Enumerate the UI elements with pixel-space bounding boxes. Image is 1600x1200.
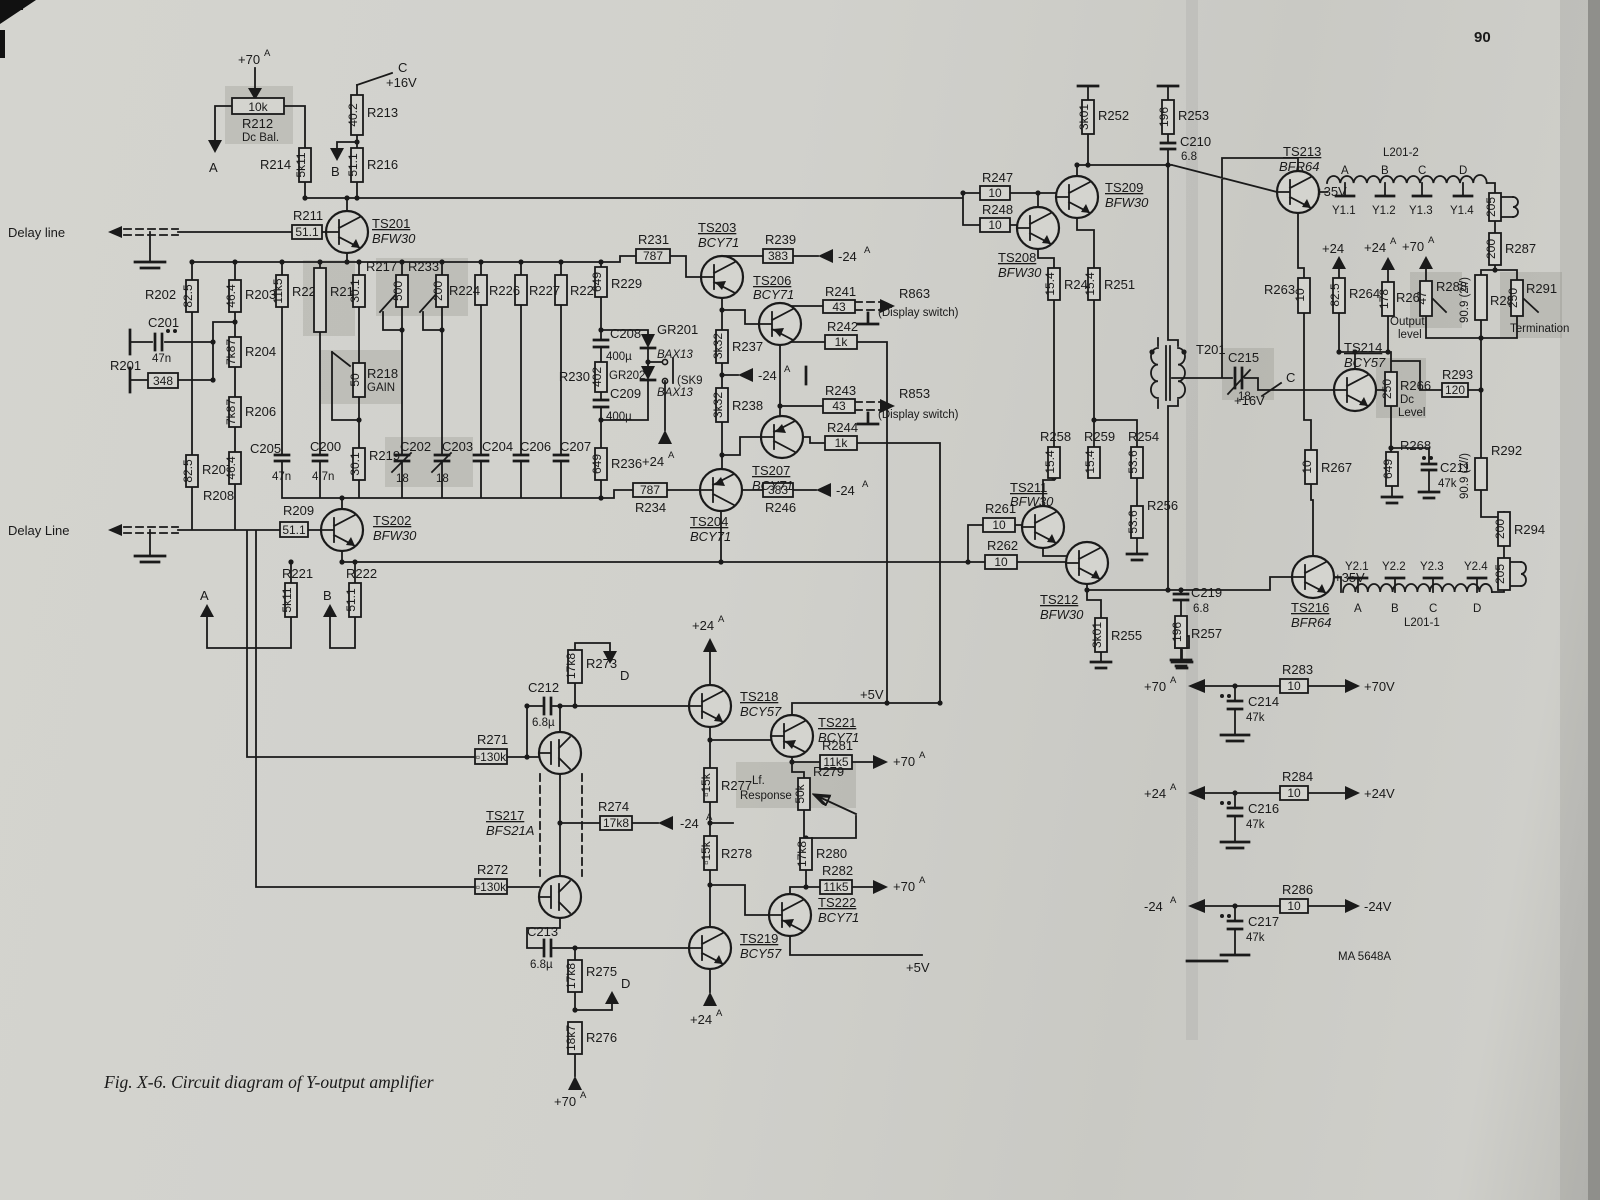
c208-value: 400µ: [606, 351, 632, 363]
ts214-ref: TS214: [1344, 340, 1382, 355]
r287-ref: R287: [1505, 241, 1536, 256]
c200-value: 4.7n: [312, 471, 334, 483]
r243-ref: R243: [825, 383, 856, 398]
l201-1-label: L201-1: [1404, 617, 1440, 629]
supply-p24v: +24V: [1364, 786, 1395, 801]
r288-function2: level: [1398, 329, 1422, 341]
c209-value: 400µ: [606, 411, 632, 423]
gr202-type: BAX13: [657, 387, 693, 399]
y14-label: Y1.4: [1450, 205, 1474, 217]
supply-p24a-row: +24: [1144, 786, 1166, 801]
r249-value: 15.4: [1043, 272, 1057, 296]
point-c-label: C: [398, 60, 407, 75]
r275-ref: R275: [586, 964, 617, 979]
r242-value: 1k: [835, 335, 849, 349]
c200-ref: C200: [310, 439, 341, 454]
r204-ref: R204: [245, 344, 276, 359]
doc-code: MA 5648A: [1338, 951, 1391, 963]
r273-ref: R273: [586, 656, 617, 671]
sup-a: A: [862, 479, 869, 490]
ts207-ref: TS207: [752, 463, 790, 478]
resistor-r242: 1kR242: [825, 319, 858, 349]
r258-value: 15.4: [1043, 450, 1057, 474]
page-number: 90: [1474, 29, 1491, 46]
resistor-r229: 649R229: [590, 267, 642, 297]
point-a-label: A: [209, 160, 218, 175]
r259-value: 15.4: [1083, 450, 1097, 474]
r244-value: 1k: [835, 436, 849, 450]
r264-ref: R264: [1349, 286, 1380, 301]
c206-ref: C206: [520, 439, 551, 454]
t201-label: T201: [1196, 342, 1226, 357]
r268-value: 649: [1381, 459, 1395, 479]
ts204-ref: TS204: [690, 514, 728, 529]
sup-a: A: [1428, 235, 1435, 246]
ts209-type: BFW30: [1105, 195, 1149, 210]
resistor-r262: 10R262: [985, 538, 1018, 569]
ts221-ref: TS221: [818, 715, 856, 730]
r204-value: 7k87: [224, 339, 238, 365]
resistor-r282: 11k5R282: [820, 863, 853, 894]
r269-value: 178: [1377, 289, 1391, 309]
r273-value: 17k8: [564, 653, 578, 679]
resistor-r263: 10R263: [1264, 278, 1310, 313]
tap-c2: C: [1429, 603, 1437, 615]
r252-ref: R252: [1098, 108, 1129, 123]
supply-p70v: +70V: [1364, 679, 1395, 694]
resistor-r254: 53.6R254: [1126, 429, 1159, 478]
r234-value: 787: [640, 483, 660, 497]
r288-function1: Output: [1390, 316, 1425, 328]
resistor-r252: 3k01R252: [1077, 100, 1129, 134]
r230-value: 402: [590, 367, 604, 387]
r234-ref: R234: [635, 500, 666, 515]
r853-ref: R853: [899, 386, 930, 401]
gr201-type: BAX13: [657, 349, 693, 361]
r222-ref: R222: [346, 566, 377, 581]
resistor-30r1: 30.1: [348, 275, 365, 307]
r261-value: 10: [992, 518, 1006, 532]
r288-value: 47: [1415, 291, 1429, 305]
resistor-r283: 10R283: [1280, 662, 1313, 693]
r216-ref: R216: [367, 157, 398, 172]
supply-p5v-top: +5V: [860, 687, 884, 702]
resistor-r214: 5k11R214: [260, 148, 311, 182]
r229-value: 649: [590, 272, 604, 292]
ts216-type: BFR64: [1291, 615, 1331, 630]
r203-value: 46.4: [224, 284, 238, 308]
r212-function: Dc Bal.: [242, 132, 279, 144]
capacitor-c207: C207: [560, 439, 591, 454]
resistor-r278: ▫15kR278: [699, 836, 752, 870]
r266-function1: Dc: [1400, 394, 1414, 406]
r291-ref: R291: [1526, 281, 1557, 296]
scanned-schematic-page: (SK9 10kR212Dc Bal. +70A A 40.2R213 C+16…: [0, 0, 1600, 1200]
r214-ref: R214: [260, 157, 291, 172]
r233-value: 200: [431, 281, 445, 301]
r253-ref: R253: [1178, 108, 1209, 123]
r218-value: 50: [348, 373, 362, 387]
sup-a: A: [706, 812, 713, 823]
r231-ref: R231: [638, 232, 669, 247]
r277-value: ▫15k: [699, 772, 713, 797]
r279-function2: Response: [740, 790, 792, 802]
ts212-ref: TS212: [1040, 592, 1078, 607]
resistor-r292: R29290.9 (2//): [1459, 443, 1522, 499]
r267-ref: R267: [1321, 460, 1352, 475]
r863-note: (Display switch): [878, 307, 959, 319]
c213-ref: C213: [527, 924, 558, 939]
figure-caption: Fig. X-6. Circuit diagram of Y-output am…: [103, 1072, 434, 1092]
r272-value: ▫130k: [476, 880, 507, 894]
r266-value: 250: [1380, 379, 1394, 399]
c213-value: 6.8µ: [530, 959, 553, 971]
r278-ref: R278: [721, 846, 752, 861]
ts221-type: BCY71: [818, 730, 859, 745]
r259-ref: R259: [1084, 429, 1115, 444]
c219-ref: C219: [1191, 585, 1222, 600]
supply-m24-r239: -24: [838, 249, 857, 264]
supply-p24-r264: +24: [1322, 241, 1344, 256]
ts216-ref: TS216: [1291, 600, 1329, 615]
c201-value: 47n: [152, 353, 171, 365]
ts202-type: BFW30: [373, 528, 417, 543]
c216-ref: C216: [1248, 801, 1279, 816]
ts212-type: BFW30: [1040, 607, 1084, 622]
diode-gr201: GR201BAX13: [657, 322, 698, 361]
resistor-r274: 17k8R274: [598, 799, 632, 830]
resistor-r221: 5k11R221: [280, 566, 313, 617]
resistor-r286: 10R286: [1280, 882, 1313, 913]
resistor-r226: R226: [489, 275, 527, 305]
ts218-type: BCY57: [740, 704, 782, 719]
c204-ref: C204: [482, 439, 513, 454]
c207-ref: C207: [560, 439, 591, 454]
point-d2-label: D: [621, 976, 630, 991]
r221-value: 5k11: [280, 587, 294, 612]
gr202-ref: GR202: [609, 370, 645, 382]
r221-ref: R221: [282, 566, 313, 581]
sup-a: A: [1170, 895, 1177, 906]
r229-ref: R229: [611, 276, 642, 291]
r271-ref: R271: [477, 732, 508, 747]
scan-artifacts: [0, 0, 1600, 1200]
sk9-label: (SK9: [677, 375, 703, 387]
resistor-r239: 383R239: [763, 232, 796, 263]
supply-p35v-ts216: +35V: [1334, 570, 1365, 585]
r280-value: 17k8: [795, 841, 809, 867]
r239-value: 383: [768, 249, 788, 263]
y12-label: Y1.2: [1372, 205, 1396, 217]
resistor-r259: 15.4R259: [1083, 429, 1115, 478]
r291-function: Termination: [1510, 323, 1569, 335]
y24-label: Y2.4: [1464, 561, 1488, 573]
resistor-r284: 10R284: [1280, 769, 1313, 800]
r268-ref: R268: [1400, 438, 1431, 453]
supply-p70a-row: +70: [1144, 679, 1166, 694]
r257-value: 196: [1170, 622, 1184, 642]
ts222-ref: TS222: [818, 895, 856, 910]
resistor-r256: 53.6R256: [1126, 498, 1178, 538]
r213-ref: R213: [367, 105, 398, 120]
r262-ref: R262: [987, 538, 1018, 553]
tap-d2: D: [1473, 603, 1481, 615]
supply-m24a-row: -24: [1144, 899, 1163, 914]
r863-ref: R863: [899, 286, 930, 301]
delay-line-bottom-label: Delay Line: [8, 523, 69, 538]
tap-a2: A: [1354, 603, 1362, 615]
resistor-r268: 649R268: [1381, 438, 1431, 486]
ts217-type: BFS21A: [486, 823, 534, 838]
c208-ref: C208: [610, 326, 641, 341]
r239-ref: R239: [765, 232, 796, 247]
r286-ref: R286: [1282, 882, 1313, 897]
resistor-r222: 51.1R222: [344, 566, 377, 617]
r209-value: 51.1: [282, 523, 306, 537]
ts201-ref: TS201: [372, 216, 410, 231]
ts203-ref: TS203: [698, 220, 736, 235]
supply-p24-ts219: +24: [690, 1012, 712, 1027]
sup-a: A: [1390, 236, 1397, 247]
r226-ref: R226: [489, 283, 520, 298]
c205-ref: C205: [250, 441, 281, 456]
r266-function2: Level: [1398, 407, 1426, 419]
r287-value: 200: [1484, 239, 1498, 259]
r282-value: 11k5: [823, 880, 848, 894]
r294-ref: R294: [1514, 522, 1545, 537]
r276-ref: R276: [586, 1030, 617, 1045]
r244-ref: R244: [827, 420, 858, 435]
resistor-r211: 51.1R211: [292, 208, 323, 239]
sup-a: A: [716, 1008, 723, 1019]
capacitor-c201: C20147n: [148, 315, 179, 365]
c211-value: 47k: [1438, 478, 1457, 490]
r209-ref: R209: [283, 503, 314, 518]
r283-value: 10: [1287, 679, 1301, 693]
r220-value: 11k5: [271, 278, 285, 303]
ts222-type: BCY71: [818, 910, 859, 925]
c212-value: 6.8µ: [532, 717, 555, 729]
l205a-value: 205: [1484, 197, 1498, 217]
c214-value: 47k: [1246, 712, 1265, 724]
capacitor-c217: C21747k: [1246, 914, 1279, 944]
r216-value: 51.1: [346, 153, 360, 177]
ts206-ref: TS206: [753, 273, 791, 288]
resistor-r258: 15.4R258: [1040, 429, 1071, 478]
r238-ref: R238: [732, 398, 763, 413]
resistor-r287: 200R287: [1484, 233, 1536, 265]
resistor-r247: 10R247: [980, 170, 1013, 200]
ts218-ref: TS218: [740, 689, 778, 704]
c214-ref: C214: [1248, 694, 1279, 709]
r264-value: 82.5: [1328, 283, 1342, 307]
supply-p70-r282: +70: [893, 879, 915, 894]
r274-value: 17k8: [603, 816, 629, 830]
c202-ref: C202: [400, 439, 431, 454]
r207-value: 82.5: [181, 459, 195, 483]
c202-value: 18: [396, 473, 409, 485]
r263-ref: R263: [1264, 282, 1295, 297]
r201-value: 348: [153, 374, 173, 388]
r243-value: 43: [832, 399, 846, 413]
supply-p24a-r269: +24: [1364, 240, 1386, 255]
sup-a: A: [718, 614, 725, 625]
r278-value: ▫15k: [699, 840, 713, 865]
supply-m24-mid: -24: [758, 368, 777, 383]
r254-ref: R254: [1128, 429, 1159, 444]
sk9-switch: (SK9: [662, 359, 702, 387]
r206-value: 7k87: [224, 399, 238, 425]
r219-ref: R219: [369, 448, 400, 463]
supply-m24-r274: -24: [680, 816, 699, 831]
capacitor-c208: C208400µ: [606, 326, 641, 363]
r246-ref: R246: [765, 500, 796, 515]
capacitor-c209: C209400µ: [606, 386, 641, 423]
resistor-r231: 787R231: [636, 232, 670, 263]
tap-d: D: [1459, 165, 1467, 177]
r222-value: 51.1: [344, 588, 358, 612]
c203-value: 18: [436, 473, 449, 485]
inductor-205b: 205: [1493, 558, 1510, 590]
c217-value: 47k: [1246, 932, 1265, 944]
r292-ref: R292: [1491, 443, 1522, 458]
resistor-r216: 51.1R216: [346, 148, 398, 182]
resistor-r243: 43R243: [823, 383, 856, 413]
tap-b2: B: [1391, 603, 1399, 615]
supply-p24-ts218: +24: [692, 618, 714, 633]
sup-a: A: [1170, 782, 1177, 793]
resistor-r227: R227: [529, 275, 567, 305]
point-d-label: D: [620, 668, 629, 683]
resistor-r271: ▫130kR271: [475, 732, 508, 764]
y22-label: Y2.2: [1382, 561, 1406, 573]
resistor-r244: 1kR244: [825, 420, 858, 450]
resistor-r272: ▫130kR272: [475, 862, 508, 894]
resistor-r230: 402R230: [559, 362, 607, 392]
resistor-r203: 46.4R203: [224, 280, 276, 312]
sup-a: A: [919, 875, 926, 886]
capacitor-c214: C21447k: [1246, 694, 1279, 724]
tap-b: B: [1381, 165, 1389, 177]
resistor-r276: 18k7R276: [564, 1022, 617, 1054]
c205-value: 47n: [272, 471, 291, 483]
supply-p35v-ts213: +35V: [1316, 184, 1347, 199]
resistor-r253: 196R253: [1157, 100, 1209, 134]
resistor-r218: 50R218GAIN: [348, 363, 398, 397]
r206-ref: R206: [245, 404, 276, 419]
r211-ref: R211: [293, 208, 323, 223]
c216-value: 47k: [1246, 819, 1265, 831]
r238-value: 3k32: [711, 392, 725, 418]
r236-value: 649: [590, 454, 604, 474]
ts206-type: BCY71: [753, 287, 794, 302]
r230-ref: R230: [559, 369, 590, 384]
c203-ref: C203: [442, 439, 473, 454]
c209-ref: C209: [610, 386, 641, 401]
y11-label: Y1.1: [1332, 205, 1356, 217]
sup-a: A: [864, 245, 871, 256]
ts209-ref: TS209: [1105, 180, 1143, 195]
tap-c: C: [1418, 165, 1426, 177]
resistor-r209: 51.1R209: [280, 503, 314, 537]
supply-m24v: -24V: [1364, 899, 1392, 914]
r292-value-note: 90.9 (2//): [1459, 453, 1471, 499]
r217-value: 500: [391, 281, 405, 301]
r294-value: 200: [1493, 519, 1507, 539]
r251-ref: R251: [1104, 277, 1135, 292]
r291-value: 250: [1506, 288, 1520, 308]
capacitor-c206: C206: [520, 439, 551, 454]
r257-ref: R257: [1191, 626, 1222, 641]
r279-value: 50k: [793, 783, 807, 803]
resistor-r202: 82.5R202: [145, 280, 198, 312]
r293-value: 120: [1445, 383, 1465, 397]
r212-ref: R212: [242, 116, 273, 131]
supply-p70-top: +70: [238, 52, 260, 67]
resistor-r275: 17k8R275: [564, 960, 617, 992]
c212-ref: C212: [528, 680, 559, 695]
r202-value: 82.5: [181, 284, 195, 308]
y13-label: Y1.3: [1409, 205, 1433, 217]
r247-ref: R247: [982, 170, 1013, 185]
ts213-type: BFR64: [1279, 159, 1319, 174]
r283-ref: R283: [1282, 662, 1313, 677]
c215-ref: C215: [1228, 350, 1259, 365]
supply-p16v: +16V: [386, 75, 417, 90]
r237-ref: R237: [732, 339, 763, 354]
ts201-type: BFW30: [372, 231, 416, 246]
ts208-ref: TS208: [998, 250, 1036, 265]
r212-value: 10k: [248, 100, 268, 114]
sup-a: A: [668, 450, 675, 461]
r251-value: 15.4: [1083, 272, 1097, 296]
r248-ref: R248: [982, 202, 1013, 217]
resistor-r237: 3k32R237: [711, 330, 763, 363]
ts217-ref: TS217: [486, 808, 524, 823]
r217-ref: R217: [366, 259, 397, 274]
r227-ref: R227: [529, 283, 560, 298]
sup-a: A: [264, 48, 271, 59]
resistor-r255: 3k01R255: [1090, 618, 1142, 652]
resistor-r234: 787R234: [633, 483, 667, 515]
r293-ref: R293: [1442, 367, 1473, 382]
ts202-ref: TS202: [373, 513, 411, 528]
c219-value: 6.8: [1193, 603, 1209, 615]
r237-value: 3k32: [711, 333, 725, 359]
resistor-r248: 10R248: [980, 202, 1013, 232]
r274-ref: R274: [598, 799, 629, 814]
r255-value: 3k01: [1090, 622, 1104, 648]
c201-ref: C201: [148, 315, 179, 330]
point-b2-label: B: [323, 588, 332, 603]
r252-value: 3k01: [1077, 104, 1091, 130]
resistor-r294: 200R294: [1493, 512, 1545, 546]
ts219-type: BCY57: [740, 946, 782, 961]
supply-p70-r281: +70: [893, 754, 915, 769]
r262-value: 10: [994, 555, 1008, 569]
sup-a: A: [1170, 675, 1177, 686]
r284-ref: R284: [1282, 769, 1313, 784]
ts213-ref: TS213: [1283, 144, 1321, 159]
r266-ref: R266: [1400, 378, 1431, 393]
supply-p24-sk9: +24: [642, 454, 664, 469]
r267-value: 10: [1300, 460, 1314, 474]
supply-p16v-c: +16V: [1234, 393, 1265, 408]
r241-value: 43: [832, 300, 846, 314]
r241-ref: R241: [825, 284, 856, 299]
sup-a: A: [784, 364, 791, 375]
ts203-type: BCY71: [698, 235, 739, 250]
